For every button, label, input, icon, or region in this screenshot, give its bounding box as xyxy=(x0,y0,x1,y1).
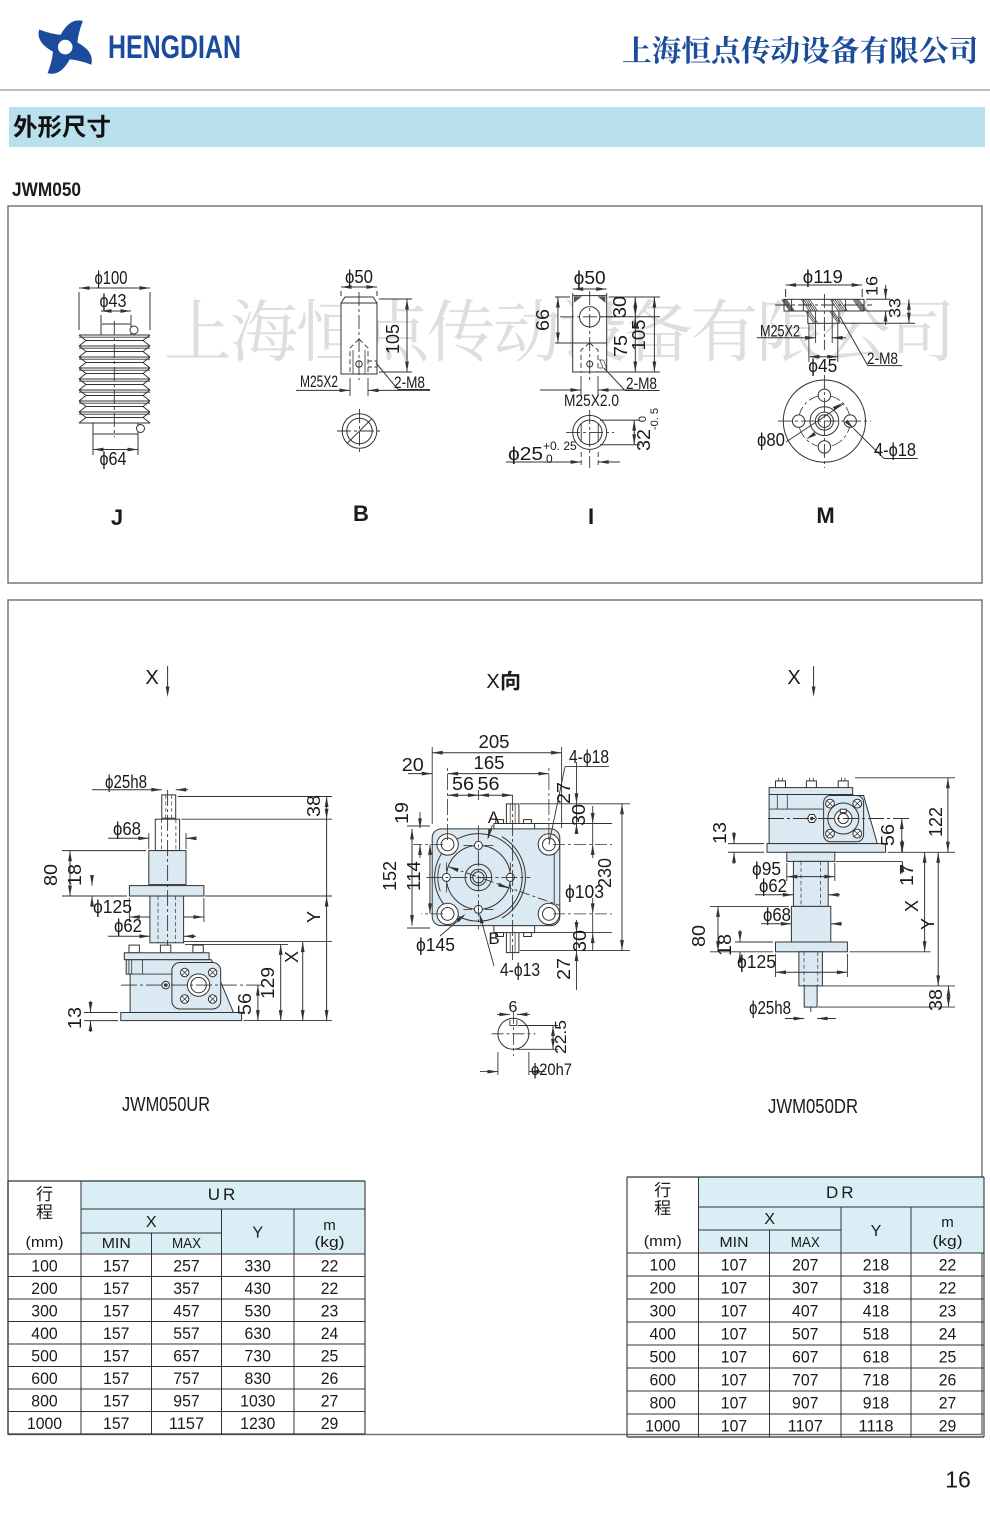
svg-text:33: 33 xyxy=(886,298,905,318)
svg-text:X: X xyxy=(902,900,922,912)
svg-text:80: 80 xyxy=(41,864,61,886)
svg-text:30: 30 xyxy=(610,296,630,318)
svg-text:80: 80 xyxy=(689,925,709,947)
svg-text:1230: 1230 xyxy=(240,1414,275,1433)
svg-text:M: M xyxy=(816,503,834,528)
svg-text:4-ϕ18: 4-ϕ18 xyxy=(569,747,609,767)
svg-text:200: 200 xyxy=(650,1279,676,1298)
svg-text:4-ϕ13: 4-ϕ13 xyxy=(500,960,540,980)
svg-text:13: 13 xyxy=(710,822,730,844)
svg-text:ϕ20h7: ϕ20h7 xyxy=(531,1060,572,1079)
svg-text:152: 152 xyxy=(380,861,400,891)
svg-text:18: 18 xyxy=(715,934,735,956)
svg-text:407: 407 xyxy=(792,1302,818,1321)
svg-text:107: 107 xyxy=(721,1302,747,1321)
svg-text:17: 17 xyxy=(897,864,917,886)
svg-text:Y: Y xyxy=(918,918,938,930)
svg-text:318: 318 xyxy=(863,1279,889,1298)
svg-text:907: 907 xyxy=(792,1394,818,1413)
svg-text:0: 0 xyxy=(546,452,553,466)
svg-text:129: 129 xyxy=(258,967,278,999)
svg-text:ϕ62: ϕ62 xyxy=(114,916,142,936)
svg-text:18: 18 xyxy=(65,864,85,886)
svg-text:600: 600 xyxy=(650,1371,676,1390)
svg-text:707: 707 xyxy=(792,1371,818,1390)
svg-text:JWM050UR: JWM050UR xyxy=(122,1094,210,1116)
svg-text:X: X xyxy=(764,1211,775,1228)
svg-text:6: 6 xyxy=(509,999,518,1016)
svg-text:UR: UR xyxy=(208,1185,239,1204)
svg-text:ϕ45: ϕ45 xyxy=(808,356,837,376)
svg-text:107: 107 xyxy=(721,1371,747,1390)
svg-text:32: 32 xyxy=(634,429,654,451)
svg-text:+0. 25: +0. 25 xyxy=(543,439,577,453)
svg-text:230: 230 xyxy=(595,858,615,888)
svg-text:1107: 1107 xyxy=(788,1417,823,1436)
svg-text:157: 157 xyxy=(103,1369,129,1388)
svg-text:ϕ25: ϕ25 xyxy=(508,444,543,464)
svg-text:20: 20 xyxy=(402,755,424,775)
svg-text:MAX: MAX xyxy=(791,1234,820,1251)
svg-text:500: 500 xyxy=(31,1346,57,1365)
svg-text:257: 257 xyxy=(173,1256,199,1275)
svg-text:Y: Y xyxy=(252,1225,263,1242)
svg-text:ϕ25h8: ϕ25h8 xyxy=(105,772,147,792)
svg-text:X: X xyxy=(146,1214,157,1231)
svg-text:19: 19 xyxy=(392,802,412,824)
svg-text:B: B xyxy=(488,929,499,948)
svg-text:557: 557 xyxy=(173,1324,199,1343)
svg-text:23: 23 xyxy=(321,1301,339,1320)
svg-text:X: X xyxy=(282,951,302,963)
svg-text:200: 200 xyxy=(31,1279,57,1298)
svg-text:27: 27 xyxy=(554,782,574,804)
svg-text:ϕ145: ϕ145 xyxy=(416,935,455,955)
svg-text:430: 430 xyxy=(245,1279,271,1298)
svg-text:24: 24 xyxy=(939,1325,957,1344)
svg-text:507: 507 xyxy=(792,1325,818,1344)
svg-text:530: 530 xyxy=(245,1301,271,1320)
svg-text:30: 30 xyxy=(570,930,590,952)
svg-text:618: 618 xyxy=(863,1348,889,1367)
svg-text:100: 100 xyxy=(650,1256,676,1275)
svg-text:300: 300 xyxy=(31,1301,57,1320)
svg-text:A: A xyxy=(488,808,500,827)
svg-text:MAX: MAX xyxy=(172,1235,201,1252)
svg-text:205: 205 xyxy=(479,732,510,752)
svg-text:107: 107 xyxy=(721,1279,747,1298)
svg-text:25: 25 xyxy=(321,1346,339,1365)
svg-text:29: 29 xyxy=(321,1414,339,1433)
svg-text:38: 38 xyxy=(926,989,946,1011)
svg-text:330: 330 xyxy=(245,1256,271,1275)
svg-text:ϕ119: ϕ119 xyxy=(803,267,843,287)
svg-text:1000: 1000 xyxy=(645,1417,680,1436)
svg-text:207: 207 xyxy=(792,1256,818,1275)
svg-text:22: 22 xyxy=(939,1279,957,1298)
svg-text:HENGDIAN: HENGDIAN xyxy=(108,29,241,65)
svg-text:518: 518 xyxy=(863,1325,889,1344)
svg-text:157: 157 xyxy=(103,1301,129,1320)
svg-text:MIN: MIN xyxy=(720,1234,749,1251)
svg-text:307: 307 xyxy=(792,1279,818,1298)
svg-text:25: 25 xyxy=(939,1348,957,1367)
svg-text:730: 730 xyxy=(245,1346,271,1365)
svg-text:M25X2: M25X2 xyxy=(300,372,338,391)
svg-text:157: 157 xyxy=(103,1324,129,1343)
svg-text:56: 56 xyxy=(478,774,500,794)
svg-text:Y: Y xyxy=(304,911,324,923)
svg-text:I: I xyxy=(588,504,594,529)
svg-text:MIN: MIN xyxy=(102,1235,131,1252)
svg-text:13: 13 xyxy=(65,1007,85,1029)
svg-text:105: 105 xyxy=(629,320,649,351)
svg-text:122: 122 xyxy=(926,807,946,837)
svg-text:16: 16 xyxy=(863,276,882,296)
svg-text:ϕ50: ϕ50 xyxy=(574,268,606,288)
svg-text:M25X2.0: M25X2.0 xyxy=(564,391,619,410)
svg-text:22: 22 xyxy=(321,1279,339,1298)
svg-text:300: 300 xyxy=(650,1302,676,1321)
svg-text:27: 27 xyxy=(321,1391,339,1410)
svg-text:16: 16 xyxy=(945,1467,971,1493)
svg-text:ϕ125: ϕ125 xyxy=(737,952,776,972)
svg-text:75: 75 xyxy=(611,335,631,357)
svg-text:357: 357 xyxy=(173,1279,199,1298)
svg-text:400: 400 xyxy=(650,1325,676,1344)
svg-text:500: 500 xyxy=(650,1348,676,1367)
svg-text:(mm): (mm) xyxy=(26,1234,64,1251)
svg-text:27: 27 xyxy=(939,1394,957,1413)
svg-text:29: 29 xyxy=(939,1417,957,1436)
svg-text:ϕ125: ϕ125 xyxy=(93,897,132,917)
svg-text:56: 56 xyxy=(235,993,255,1015)
svg-text:165: 165 xyxy=(474,753,505,773)
svg-text:ϕ62: ϕ62 xyxy=(759,876,787,896)
svg-text:ϕ43: ϕ43 xyxy=(100,291,127,311)
svg-text:657: 657 xyxy=(173,1346,199,1365)
svg-text:114: 114 xyxy=(404,861,424,891)
svg-text:DR: DR xyxy=(826,1183,857,1202)
svg-text:JWM050DR: JWM050DR xyxy=(768,1096,858,1118)
svg-text:4-ϕ18: 4-ϕ18 xyxy=(874,440,916,460)
svg-text:(mm): (mm) xyxy=(644,1233,682,1250)
svg-text:918: 918 xyxy=(863,1394,889,1413)
svg-text:30: 30 xyxy=(569,804,589,826)
svg-text:ϕ25h8: ϕ25h8 xyxy=(749,998,791,1018)
svg-text:22.5: 22.5 xyxy=(553,1020,570,1054)
svg-text:26: 26 xyxy=(939,1371,957,1390)
svg-text:800: 800 xyxy=(650,1394,676,1413)
svg-text:457: 457 xyxy=(173,1301,199,1320)
svg-text:m: m xyxy=(941,1214,954,1231)
svg-text:X: X xyxy=(145,667,158,689)
svg-text:607: 607 xyxy=(792,1348,818,1367)
svg-text:957: 957 xyxy=(173,1391,199,1410)
svg-text:22: 22 xyxy=(939,1256,957,1275)
svg-text:107: 107 xyxy=(721,1348,747,1367)
svg-text:B: B xyxy=(353,501,369,526)
svg-text:1000: 1000 xyxy=(27,1414,62,1433)
svg-text:157: 157 xyxy=(103,1279,129,1298)
svg-text:107: 107 xyxy=(721,1256,747,1275)
svg-text:107: 107 xyxy=(721,1325,747,1344)
svg-text:Y: Y xyxy=(871,1223,882,1240)
svg-text:23: 23 xyxy=(939,1302,957,1321)
svg-text:157: 157 xyxy=(103,1256,129,1275)
svg-text:1030: 1030 xyxy=(240,1391,275,1410)
svg-text:27: 27 xyxy=(554,958,574,980)
svg-text:718: 718 xyxy=(863,1371,889,1390)
svg-text:(kg): (kg) xyxy=(315,1234,345,1251)
svg-text:800: 800 xyxy=(31,1391,57,1410)
svg-text:630: 630 xyxy=(245,1324,271,1343)
svg-text:157: 157 xyxy=(103,1346,129,1365)
svg-text:X: X xyxy=(486,671,499,693)
svg-text:56: 56 xyxy=(452,774,474,794)
svg-text:ϕ68: ϕ68 xyxy=(763,905,791,925)
svg-text:1157: 1157 xyxy=(169,1414,204,1433)
svg-text:105: 105 xyxy=(383,324,403,354)
svg-text:38: 38 xyxy=(304,795,324,817)
svg-text:X: X xyxy=(787,667,800,689)
svg-text:J: J xyxy=(111,505,123,530)
svg-text:757: 757 xyxy=(173,1369,199,1388)
svg-text:(kg): (kg) xyxy=(933,1233,963,1250)
svg-text:418: 418 xyxy=(863,1302,889,1321)
svg-text:22: 22 xyxy=(321,1256,339,1275)
svg-text:218: 218 xyxy=(863,1256,889,1275)
svg-text:ϕ80: ϕ80 xyxy=(757,430,785,450)
svg-text:ϕ64: ϕ64 xyxy=(100,449,127,469)
svg-text:600: 600 xyxy=(31,1369,57,1388)
svg-text:107: 107 xyxy=(721,1417,747,1436)
svg-text:-0. 5: -0. 5 xyxy=(649,408,661,430)
svg-text:107: 107 xyxy=(721,1394,747,1413)
svg-text:100: 100 xyxy=(31,1256,57,1275)
svg-text:1118: 1118 xyxy=(858,1417,893,1436)
svg-text:26: 26 xyxy=(321,1369,339,1388)
svg-text:56: 56 xyxy=(878,824,898,846)
svg-text:24: 24 xyxy=(321,1324,339,1343)
svg-text:ϕ100: ϕ100 xyxy=(95,268,128,288)
svg-text:JWM050: JWM050 xyxy=(12,180,81,201)
svg-text:830: 830 xyxy=(245,1369,271,1388)
svg-text:0: 0 xyxy=(637,416,649,422)
svg-text:ϕ50: ϕ50 xyxy=(345,267,373,287)
svg-text:157: 157 xyxy=(103,1414,129,1433)
svg-text:400: 400 xyxy=(31,1324,57,1343)
svg-text:m: m xyxy=(323,1217,336,1234)
svg-text:157: 157 xyxy=(103,1391,129,1410)
svg-text:66: 66 xyxy=(533,309,553,331)
svg-text:ϕ68: ϕ68 xyxy=(113,819,141,839)
